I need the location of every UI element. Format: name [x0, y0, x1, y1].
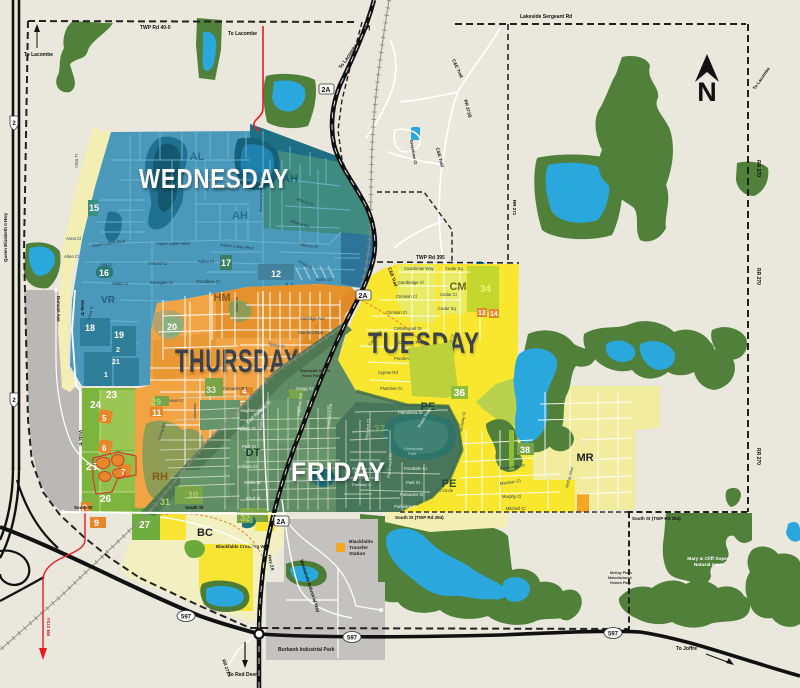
svg-text:Park: Park: [408, 451, 416, 456]
svg-text:597: 597: [347, 636, 358, 642]
svg-text:Transfer: Transfer: [349, 545, 368, 551]
svg-text:Valley Cr: Valley Cr: [112, 281, 129, 286]
svg-text:Mary & Cliff Soper: Mary & Cliff Soper: [687, 556, 729, 562]
svg-text:Homes Park: Homes Park: [610, 581, 631, 585]
svg-text:Silver St: Silver St: [234, 296, 239, 312]
svg-text:Plumtree Cr: Plumtree Cr: [380, 386, 403, 391]
svg-text:South St (TWP Rd 394): South St (TWP Rd 394): [395, 515, 444, 520]
svg-text:2A: 2A: [277, 519, 286, 526]
svg-text:2A: 2A: [322, 87, 331, 94]
svg-text:18: 18: [85, 323, 95, 333]
svg-text:Lakeview: Lakeview: [192, 403, 197, 420]
svg-text:29: 29: [151, 397, 161, 407]
svg-text:HM: HM: [213, 292, 230, 304]
svg-text:VR: VR: [101, 295, 116, 306]
svg-text:TWP Rd 40-0: TWP Rd 40-0: [140, 25, 171, 31]
svg-text:Gregg St: Gregg St: [296, 386, 314, 391]
svg-text:26: 26: [100, 494, 112, 505]
svg-text:AH: AH: [232, 210, 248, 222]
svg-text:AL: AL: [190, 151, 205, 163]
svg-text:Cambridge Cl: Cambridge Cl: [398, 280, 424, 285]
svg-text:21: 21: [112, 359, 120, 366]
svg-text:Churchill Pl: Churchill Pl: [398, 340, 419, 345]
svg-text:31: 31: [160, 497, 170, 507]
svg-text:597: 597: [181, 615, 192, 621]
svg-text:Arrowwood Cl: Arrowwood Cl: [213, 186, 239, 191]
svg-text:Coachman Way: Coachman Way: [404, 266, 435, 271]
svg-text:11: 11: [152, 408, 162, 418]
svg-text:To Lacombe: To Lacombe: [24, 52, 53, 58]
svg-text:20: 20: [167, 322, 177, 332]
svg-text:Indiana St: Indiana St: [238, 464, 258, 469]
svg-text:To Joffre: To Joffre: [676, 646, 697, 652]
svg-text:17: 17: [221, 258, 231, 268]
svg-text:Vista Tr: Vista Tr: [78, 430, 83, 446]
svg-text:10: 10: [188, 490, 198, 500]
svg-text:Ava Cr: Ava Cr: [100, 262, 113, 267]
svg-text:Winks St: Winks St: [244, 480, 261, 485]
svg-text:Anna Cl: Anna Cl: [66, 236, 81, 241]
svg-text:Natural Area: Natural Area: [694, 562, 723, 568]
svg-text:Stanford Blvd: Stanford Blvd: [298, 330, 324, 335]
svg-text:Shull St: Shull St: [246, 496, 261, 501]
svg-text:Park St: Park St: [406, 480, 421, 485]
svg-text:24: 24: [90, 400, 102, 411]
svg-text:2A: 2A: [359, 293, 368, 300]
svg-text:Station: Station: [349, 551, 365, 557]
svg-text:RR 270: RR 270: [755, 160, 761, 177]
svg-text:Crimson Cl: Crimson Cl: [396, 294, 417, 299]
svg-text:Almond Cr: Almond Cr: [148, 261, 168, 266]
svg-text:13: 13: [478, 310, 486, 317]
svg-text:Duncan Ave: Duncan Ave: [56, 296, 61, 322]
svg-text:14: 14: [490, 311, 498, 318]
svg-text:Westgate Cr: Westgate Cr: [150, 280, 174, 285]
svg-text:Pondside Cr: Pondside Cr: [404, 466, 428, 471]
svg-text:5: 5: [102, 414, 107, 423]
svg-text:9: 9: [94, 518, 99, 528]
svg-text:Wilson St: Wilson St: [238, 426, 257, 431]
svg-text:2: 2: [116, 347, 120, 354]
svg-text:Blackfalds Crossing Way: Blackfalds Crossing Way: [216, 544, 270, 549]
svg-text:597: 597: [608, 632, 619, 638]
svg-text:Vista Tr: Vista Tr: [80, 300, 85, 316]
svg-text:6: 6: [102, 444, 107, 453]
svg-text:12: 12: [271, 269, 281, 279]
svg-text:1: 1: [104, 372, 108, 379]
svg-text:Mitchell Cr: Mitchell Cr: [506, 506, 526, 511]
svg-text:RH: RH: [152, 471, 168, 483]
svg-text:Aspen Lakes Blvd: Aspen Lakes Blvd: [156, 241, 190, 246]
svg-text:RR 270: RR 270: [755, 448, 761, 465]
svg-text:MR: MR: [576, 452, 593, 464]
svg-text:37: 37: [374, 424, 386, 435]
svg-text:Crimson Ct: Crimson Ct: [386, 310, 408, 315]
svg-text:N: N: [697, 77, 717, 107]
svg-text:South St (TWP Rd 394): South St (TWP Rd 394): [632, 516, 681, 521]
svg-text:Parkridge Cr: Parkridge Cr: [394, 504, 418, 509]
svg-text:23: 23: [106, 390, 118, 401]
svg-text:Park St: Park St: [242, 444, 257, 449]
svg-text:Broadway Ave/RR 272: Broadway Ave/RR 272: [258, 171, 263, 212]
svg-text:Cedar Sq: Cedar Sq: [445, 266, 463, 271]
svg-text:Adina Cl: Adina Cl: [198, 259, 214, 264]
svg-text:38: 38: [520, 445, 530, 455]
svg-text:To Lacombe: To Lacombe: [228, 31, 257, 37]
svg-text:South St: South St: [74, 505, 93, 510]
svg-text:Sunridge Ave: Sunridge Ave: [300, 316, 326, 321]
svg-text:FRIDAY: FRIDAY: [291, 457, 386, 487]
svg-text:Lakeside Sergeant Rd: Lakeside Sergeant Rd: [520, 14, 572, 20]
svg-text:Palisades St: Palisades St: [400, 492, 424, 497]
svg-text:36: 36: [454, 388, 466, 399]
svg-text:TWP Rd 395: TWP Rd 395: [416, 255, 445, 261]
svg-text:19: 19: [114, 330, 124, 340]
svg-text:Blackfalds: Blackfalds: [349, 539, 373, 545]
svg-text:South St: South St: [185, 505, 204, 510]
svg-text:Cyprus Rd: Cyprus Rd: [378, 370, 398, 375]
svg-text:Queen Elizabeth II Hwy: Queen Elizabeth II Hwy: [3, 212, 8, 262]
svg-text:Cedar Sq: Cedar Sq: [438, 306, 456, 311]
svg-text:Vista Tr: Vista Tr: [74, 153, 79, 168]
svg-text:Woodbine Cl: Woodbine Cl: [196, 279, 220, 284]
svg-text:Aztec Cr: Aztec Cr: [316, 277, 333, 282]
svg-text:Cedar Cr: Cedar Cr: [440, 292, 458, 297]
svg-text:Womacks Rd: Womacks Rd: [222, 386, 247, 391]
svg-text:PE: PE: [442, 478, 457, 490]
svg-text:RR 272A: RR 272A: [46, 617, 51, 636]
svg-text:RR 270: RR 270: [755, 268, 761, 285]
svg-text:Panorama Dr: Panorama Dr: [398, 410, 424, 415]
svg-text:Burbank Industrial Park: Burbank Industrial Park: [278, 647, 335, 653]
svg-text:Cottonwood Dr: Cottonwood Dr: [394, 326, 423, 331]
svg-text:Portway Cl: Portway Cl: [352, 482, 371, 487]
svg-text:7: 7: [121, 468, 126, 477]
svg-text:33: 33: [206, 385, 216, 395]
svg-text:Arlen Cl: Arlen Cl: [64, 254, 79, 259]
svg-text:AH: AH: [282, 173, 298, 185]
svg-text:34: 34: [480, 284, 492, 295]
svg-text:16: 16: [99, 268, 109, 278]
svg-text:RR 271: RR 271: [512, 200, 517, 216]
svg-text:Blackfalds Mobile: Blackfalds Mobile: [300, 369, 330, 373]
svg-text:Home Park: Home Park: [302, 374, 321, 378]
svg-text:15: 15: [89, 203, 99, 213]
svg-text:Pinnacle Cl: Pinnacle Cl: [352, 466, 372, 471]
svg-text:Murphy Cl: Murphy Cl: [502, 494, 521, 499]
